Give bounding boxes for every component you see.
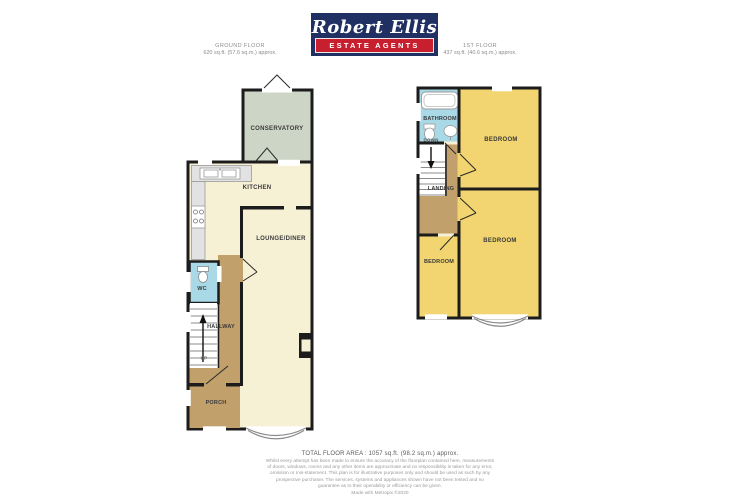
room-label-bathroom: BATHROOM xyxy=(423,116,457,122)
room-label-porch: PORCH xyxy=(206,400,227,406)
landing-floor-b xyxy=(420,196,458,234)
floorplan-canvas xyxy=(0,0,750,497)
toilet-icon xyxy=(198,267,209,283)
stairs-up-label: UP xyxy=(201,356,208,361)
room-label-wc: WC xyxy=(197,286,207,292)
metropix-credit: Made with Metropix ©2020 xyxy=(265,491,495,496)
room-label-landing: LANDING xyxy=(428,186,454,192)
bedroom-small-room xyxy=(420,237,458,317)
room-label-bedroom-front: BEDROOM xyxy=(484,137,517,143)
room-label-bedroom-back: BEDROOM xyxy=(483,238,516,244)
room-label-conservatory: CONSERVATORY xyxy=(251,126,304,132)
disclaimer-text: Whilst every attempt has been made to en… xyxy=(265,459,495,490)
room-label-hallway: HALLWAY xyxy=(207,324,235,330)
first-floor-plan xyxy=(416,86,540,326)
room-label-kitchen: KITCHEN xyxy=(243,185,272,191)
footer-block: TOTAL FLOOR AREA : 1057 sq.ft. (98.2 sq.… xyxy=(265,451,495,496)
room-label-bedroom-small: BEDROOM xyxy=(424,259,454,265)
room-label-lounge-diner: LOUNGE/DINER xyxy=(256,236,306,242)
floorplan-page: Robert Ellis ESTATE AGENTS GROUND FLOOR … xyxy=(0,0,750,497)
bathtub-icon xyxy=(422,92,458,109)
sink-icon xyxy=(200,168,240,179)
total-floor-area: TOTAL FLOOR AREA : 1057 sq.ft. (98.2 sq.… xyxy=(265,451,495,457)
stairs-down-label: DOWN xyxy=(423,138,438,143)
hob-icon xyxy=(192,206,206,228)
